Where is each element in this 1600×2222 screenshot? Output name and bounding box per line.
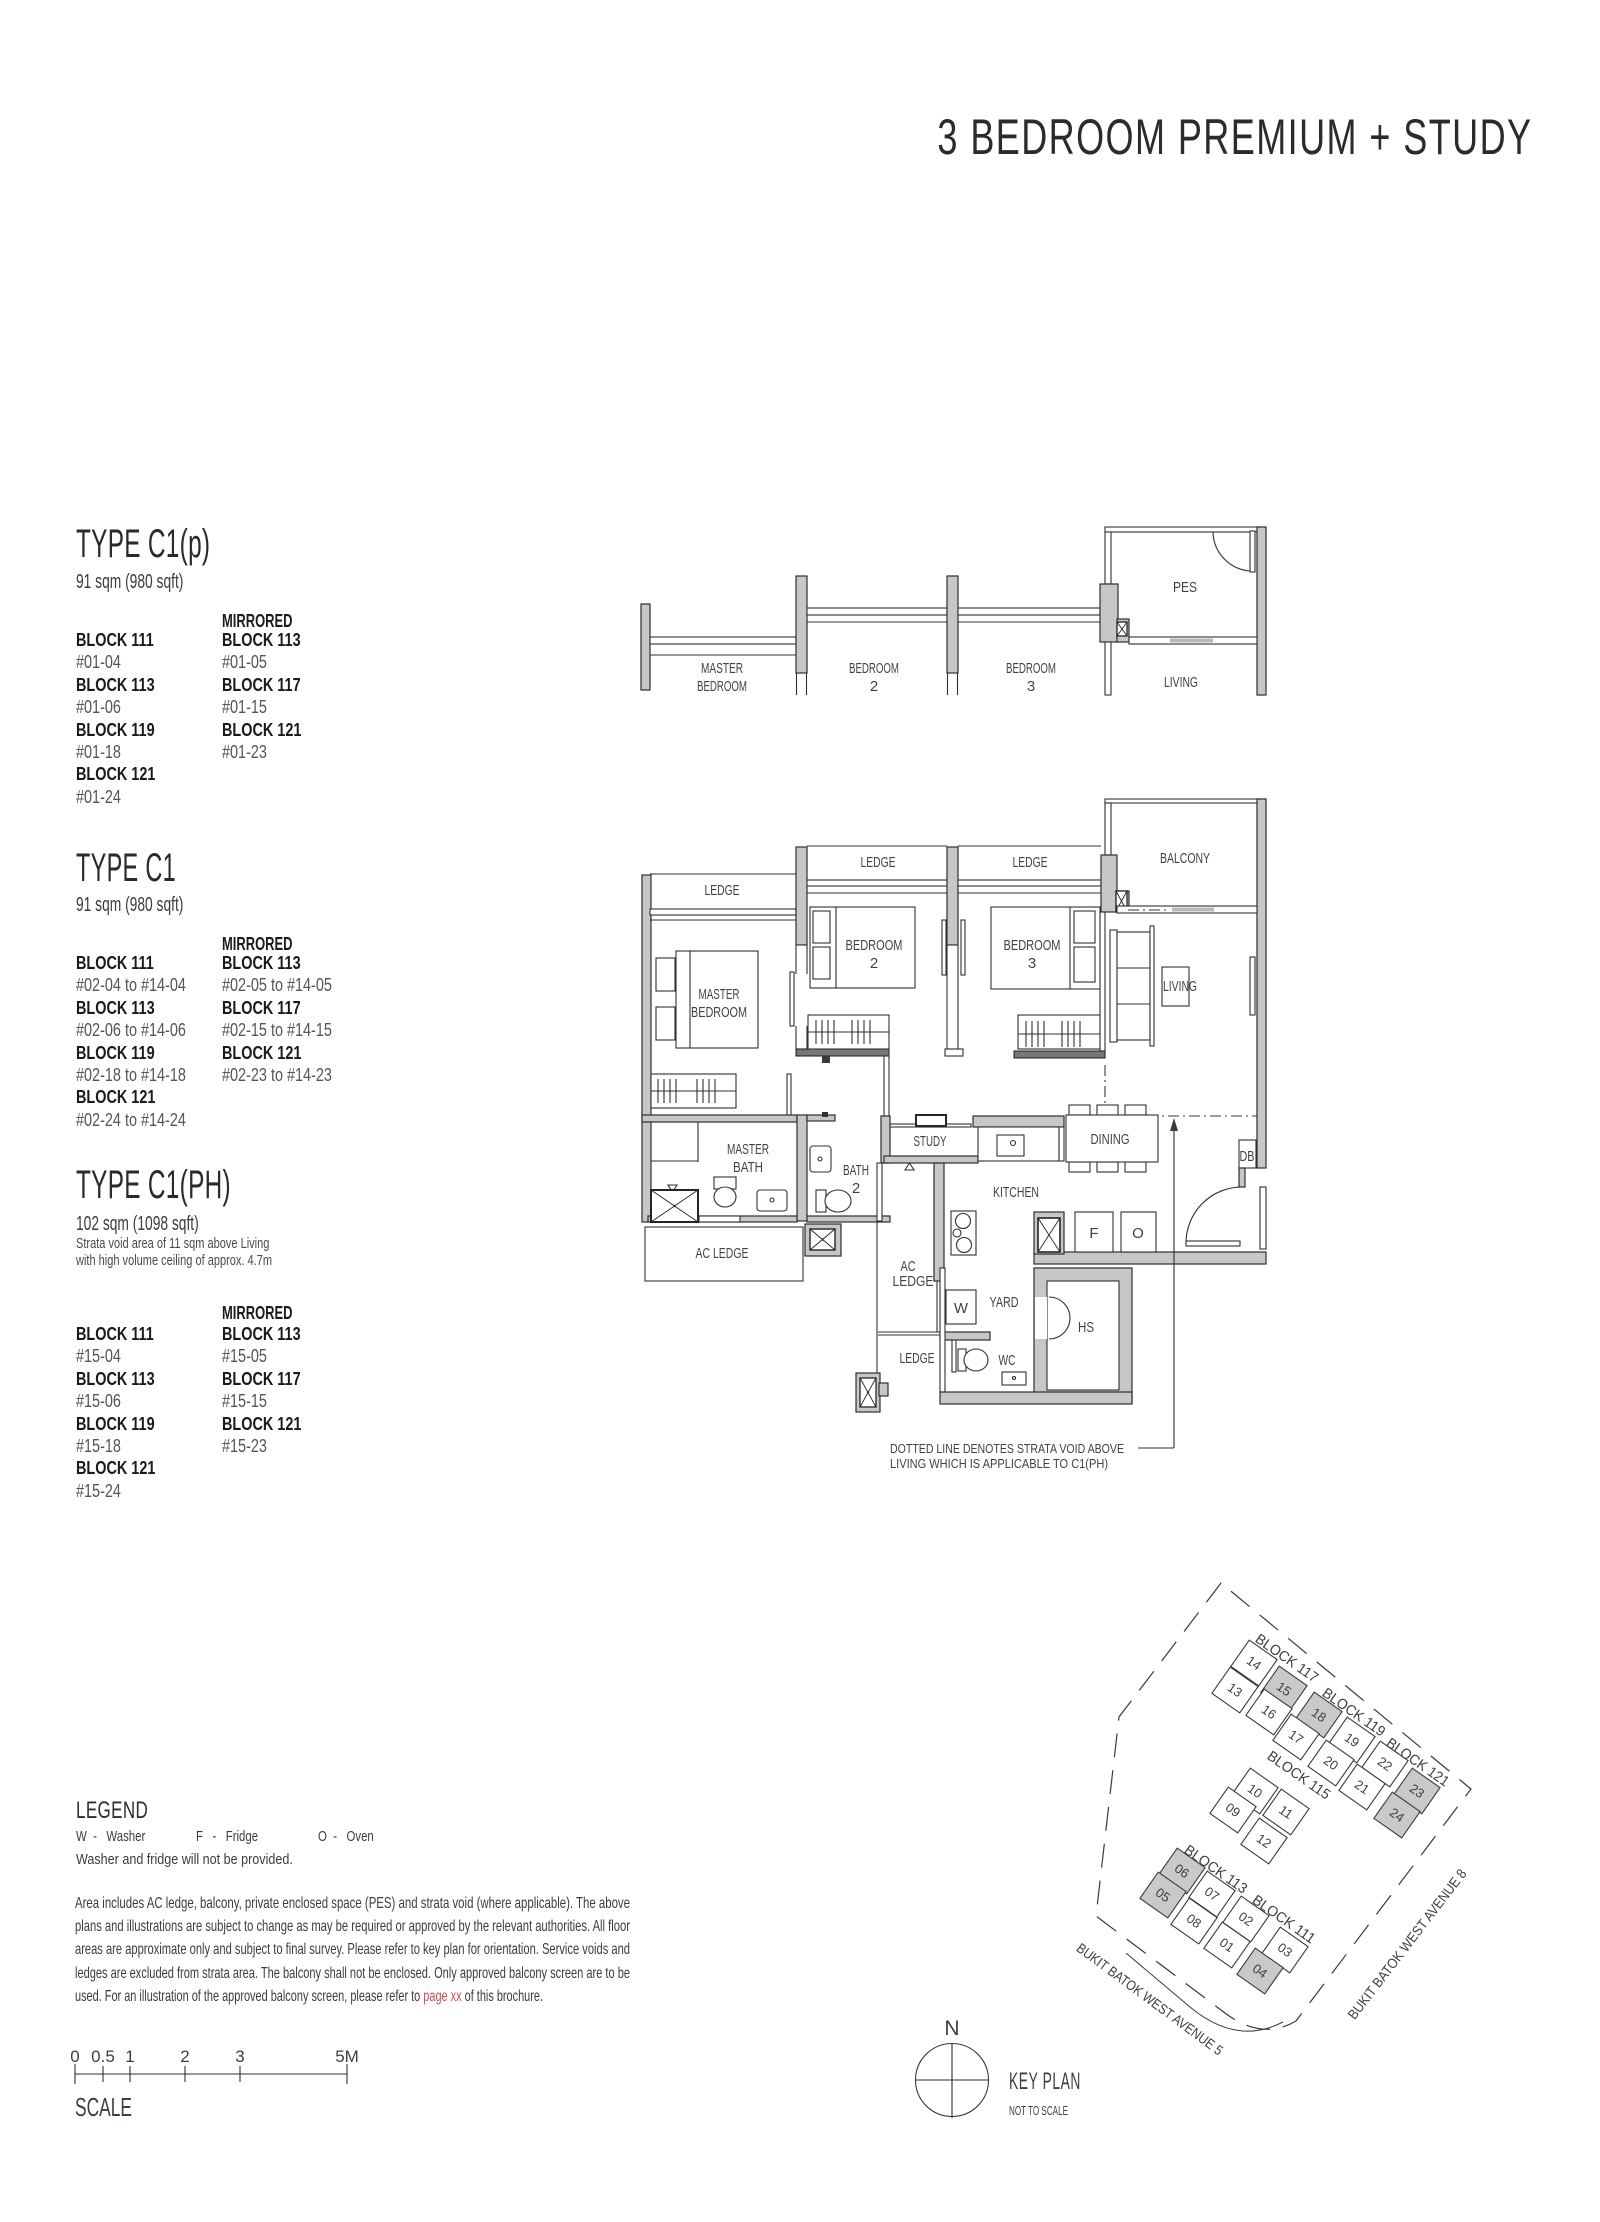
svg-text:BEDROOM: BEDROOM [849,660,899,677]
svg-text:BEDROOM: BEDROOM [1006,660,1056,677]
svg-text:2: 2 [870,678,878,695]
svg-text:DOTTED LINE DENOTES STRATA VOI: DOTTED LINE DENOTES STRATA VOID ABOVE [890,1441,1124,1456]
svg-text:BATH: BATH [843,1162,869,1179]
svg-text:2: 2 [180,2047,189,2066]
svg-text:HS: HS [1078,1319,1094,1336]
svg-text:MASTER: MASTER [699,986,740,1003]
svg-text:KEY PLAN: KEY PLAN [1009,2068,1081,2095]
svg-text:2: 2 [870,955,878,972]
svg-text:LIVING WHICH IS APPLICABLE TO: LIVING WHICH IS APPLICABLE TO C1(PH) [890,1456,1108,1471]
svg-text:2: 2 [852,1180,860,1197]
svg-text:KITCHEN: KITCHEN [993,1184,1039,1201]
svg-text:LEDGE: LEDGE [900,1350,935,1367]
svg-text:BUKIT BATOK WEST AVENUE 5: BUKIT BATOK WEST AVENUE 5 [1074,1940,1227,2059]
svg-text:5M: 5M [335,2047,359,2066]
svg-text:0: 0 [70,2047,79,2066]
svg-text:STUDY: STUDY [914,1133,947,1150]
svg-text:BEDROOM: BEDROOM [1004,937,1061,954]
svg-text:WC: WC [999,1352,1016,1369]
svg-text:3: 3 [235,2047,244,2066]
svg-text:MASTER: MASTER [701,660,743,677]
svg-text:AC LEDGE: AC LEDGE [696,1245,749,1262]
svg-text:LIVING: LIVING [1163,978,1197,995]
svg-text:0.5: 0.5 [91,2047,115,2066]
svg-text:BEDROOM: BEDROOM [697,678,747,695]
svg-text:W: W [954,1300,969,1317]
svg-text:1: 1 [125,2047,134,2066]
svg-text:NOT TO SCALE: NOT TO SCALE [1009,2104,1068,2118]
svg-text:3: 3 [1028,955,1036,972]
svg-text:F: F [1089,1225,1098,1242]
svg-text:BEDROOM: BEDROOM [691,1004,747,1021]
svg-text:BALCONY: BALCONY [1160,850,1210,867]
svg-text:DB: DB [1240,1148,1255,1165]
svg-text:LIVING: LIVING [1164,674,1198,691]
svg-text:BEDROOM: BEDROOM [846,937,903,954]
svg-text:N: N [944,2017,959,2040]
svg-text:LEDGE: LEDGE [705,882,740,899]
svg-text:DINING: DINING [1091,1131,1130,1148]
svg-text:LEDGE: LEDGE [893,1273,934,1290]
svg-text:BUKIT BATOK WEST AVENUE 8: BUKIT BATOK WEST AVENUE 8 [1344,1866,1469,2023]
svg-text:LEDGE: LEDGE [861,854,896,871]
svg-text:3: 3 [1027,678,1035,695]
svg-text:MASTER: MASTER [727,1141,769,1158]
svg-text:O: O [1132,1225,1144,1242]
svg-text:YARD: YARD [990,1294,1019,1311]
svg-text:SCALE: SCALE [75,2092,132,2122]
svg-text:PES: PES [1173,579,1197,596]
svg-text:BATH: BATH [733,1159,763,1176]
svg-text:LEDGE: LEDGE [1013,854,1048,871]
